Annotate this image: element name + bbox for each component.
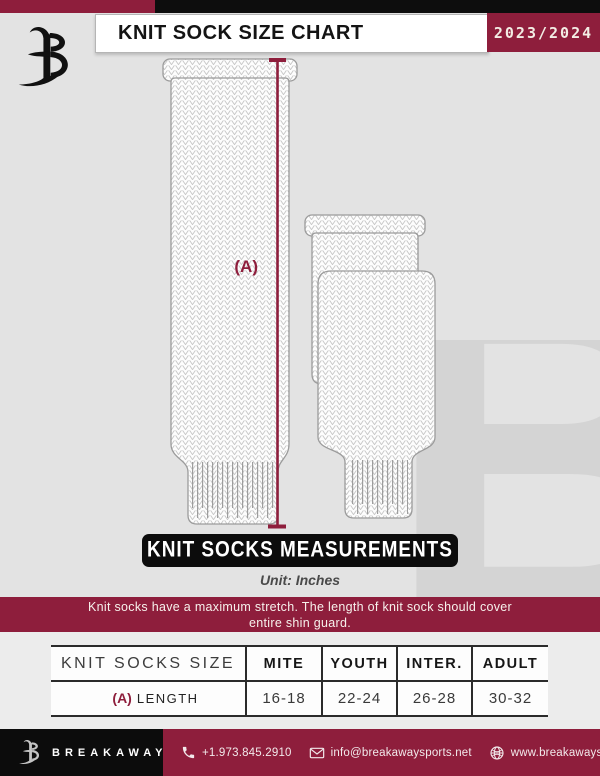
footer-phone-text: +1.973.845.2910 bbox=[202, 747, 292, 759]
sock-adult bbox=[163, 59, 297, 524]
row-label-text: LENGTH bbox=[137, 691, 199, 706]
title-band: KNIT SOCK SIZE CHART bbox=[95, 14, 489, 53]
col-header-mite: MITE bbox=[246, 646, 322, 681]
footer-phone-link[interactable]: +1.973.845.2910 bbox=[181, 745, 292, 760]
footer: BREAKAWAY +1.973.845.2910 info@breakaway… bbox=[0, 729, 600, 776]
footer-breakaway-logo-icon bbox=[18, 738, 44, 768]
measurements-banner: KNIT SOCKS MEASUREMENTS bbox=[142, 534, 458, 567]
page-title: KNIT SOCK SIZE CHART bbox=[118, 22, 364, 45]
top-strip-maroon bbox=[0, 0, 155, 13]
footer-email-text: info@breakawaysports.net bbox=[331, 747, 472, 759]
top-strip bbox=[0, 0, 600, 13]
size-table-length-row: (A)LENGTH 16-18 22-24 26-28 30-32 bbox=[51, 681, 548, 716]
footer-website-text: www.breakawaysports.net bbox=[511, 747, 600, 759]
breakaway-logo-icon bbox=[16, 16, 80, 102]
watermark-container: B bbox=[330, 340, 600, 632]
note-line-1: Knit socks have a maximum stretch. The l… bbox=[88, 599, 512, 615]
size-table-section: KNIT SOCKS SIZE MITE YOUTH INTER. ADULT … bbox=[0, 632, 600, 729]
unit-label: Unit: Inches bbox=[0, 572, 600, 588]
length-inter: 26-28 bbox=[397, 681, 472, 716]
measurement-line-a bbox=[268, 60, 286, 527]
col-header-adult: ADULT bbox=[472, 646, 548, 681]
size-table-header-row: KNIT SOCKS SIZE MITE YOUTH INTER. ADULT bbox=[51, 646, 548, 681]
top-strip-black bbox=[155, 0, 600, 13]
measurements-banner-text: KNIT SOCKS MEASUREMENTS bbox=[147, 538, 453, 564]
col-header-inter: INTER. bbox=[397, 646, 472, 681]
phone-icon bbox=[181, 745, 196, 760]
measure-label-a: (A) bbox=[234, 257, 258, 276]
footer-website-link[interactable]: www.breakawaysports.net bbox=[489, 745, 600, 761]
footer-brand-block: BREAKAWAY bbox=[0, 729, 163, 776]
footer-email-link[interactable]: info@breakawaysports.net bbox=[309, 745, 472, 761]
footer-brand-name: BREAKAWAY bbox=[52, 747, 168, 759]
row-label-length: (A)LENGTH bbox=[51, 681, 246, 716]
length-youth: 22-24 bbox=[322, 681, 397, 716]
length-mite: 16-18 bbox=[246, 681, 322, 716]
stretch-note-banner: Knit socks have a maximum stretch. The l… bbox=[0, 597, 600, 632]
size-table: KNIT SOCKS SIZE MITE YOUTH INTER. ADULT … bbox=[51, 645, 548, 717]
season-badge: 2023/2024 bbox=[487, 13, 600, 52]
note-line-2: entire shin guard. bbox=[249, 615, 351, 631]
footer-contact-bar: +1.973.845.2910 info@breakawaysports.net… bbox=[163, 729, 600, 776]
watermark-b-icon: B bbox=[385, 340, 600, 632]
length-adult: 30-32 bbox=[472, 681, 548, 716]
globe-icon bbox=[489, 745, 505, 761]
row-label-key: (A) bbox=[112, 690, 131, 706]
col-header-size: KNIT SOCKS SIZE bbox=[51, 646, 246, 681]
col-header-youth: YOUTH bbox=[322, 646, 397, 681]
envelope-icon bbox=[309, 745, 325, 761]
size-chart-page: KNIT SOCK SIZE CHART 2023/2024 B bbox=[0, 0, 600, 776]
